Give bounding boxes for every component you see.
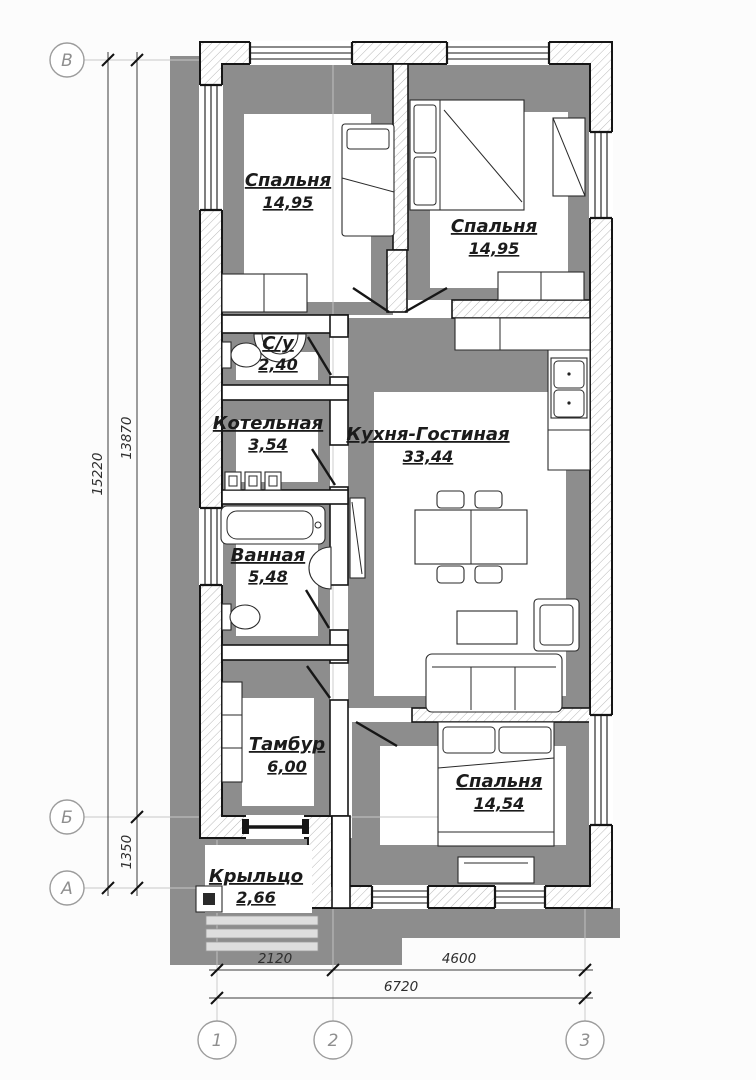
wall-wc-north [222,315,348,333]
axis-marker-col-3: 3 [580,1031,591,1051]
room-name-bedroom-2: Спальня [451,216,538,237]
window-icon [589,132,613,218]
window-icon [372,885,428,909]
room-area-bedroom-2: 14,95 [469,239,520,258]
dimension-width-left: 2120 [258,951,292,967]
dresser-icon [222,274,307,312]
window-icon [199,85,223,210]
room-name-vestibule: Тамбур [249,734,325,755]
closet-icon [222,682,242,782]
toilet-icon [222,342,261,368]
sofa-icon [426,654,562,712]
coffee-table-icon [457,611,517,644]
toilet-icon [222,604,260,630]
dimension-width-total: 6720 [384,979,418,995]
armchair-icon [534,599,579,651]
tv-stand-icon [458,857,534,883]
kitchen-sink-icon [551,358,587,418]
axis-marker-col-2: 2 [328,1031,339,1051]
room-name-boiler: Котельная [213,413,324,434]
window-icon [199,508,223,585]
axis-marker-row-a: А [60,879,73,899]
tv-panel-icon [350,498,365,578]
dimension-height-main: 13870 [119,417,135,460]
dimension-left: 15220 13870 1350 [90,52,143,896]
room-name-bedroom-3: Спальня [456,771,543,792]
axis-marker-col-1: 1 [212,1031,223,1051]
porch-steps-icon [206,916,318,951]
wall-boiler-bath [222,490,348,504]
room-area-bedroom-1: 14,95 [263,193,314,212]
wall-stub-hall [387,250,407,312]
window-icon [447,41,549,65]
room-name-porch: Крыльцо [209,866,303,887]
room-area-vestibule: 6,00 [267,757,306,776]
room-area-bathroom: 5,48 [248,567,287,586]
wall-bath-vestibule [222,645,348,660]
boiler-equipment-icon [225,472,281,490]
window-icon [495,885,545,909]
porch-column-icon [196,886,222,912]
axis-marker-row-v: В [61,51,73,71]
dimension-height-total: 15220 [90,453,106,496]
room-area-bedroom-3: 14,54 [474,794,525,813]
wall-bedroom2-south [452,300,590,318]
double-bed-icon [410,100,524,210]
single-bed-icon [342,124,394,236]
room-name-wc: С/у [262,333,295,354]
room-name-bedroom-1: Спальня [245,170,332,191]
room-area-boiler: 3,54 [248,435,287,454]
axis-marker-row-b: Б [61,808,73,828]
window-icon [250,41,352,65]
room-area-kitchen-living: 33,44 [403,447,454,466]
floor-plan-canvas: Спальня 14,95 Спальня 14,95 С/у 2,40 Кот… [0,0,756,1080]
room-area-wc: 2,40 [258,355,297,374]
room-area-porch: 2,66 [236,888,275,907]
entry-door [242,815,309,839]
bathtub-icon [221,506,325,544]
wall-between-bedrooms [393,64,408,250]
wall-wc-boiler [222,385,348,400]
wall-bedroom3-west [332,816,350,908]
window-icon [589,715,613,825]
room-name-bathroom: Ванная [231,545,306,566]
wardrobe-icon [553,118,585,196]
dimension-width-right: 4600 [442,951,476,967]
room-name-kitchen-living: Кухня-Гостиная [346,424,510,445]
dresser-icon [498,272,584,300]
floor-plan-page: Спальня 14,95 Спальня 14,95 С/у 2,40 Кот… [0,0,756,1080]
dimension-height-porch: 1350 [119,835,135,869]
